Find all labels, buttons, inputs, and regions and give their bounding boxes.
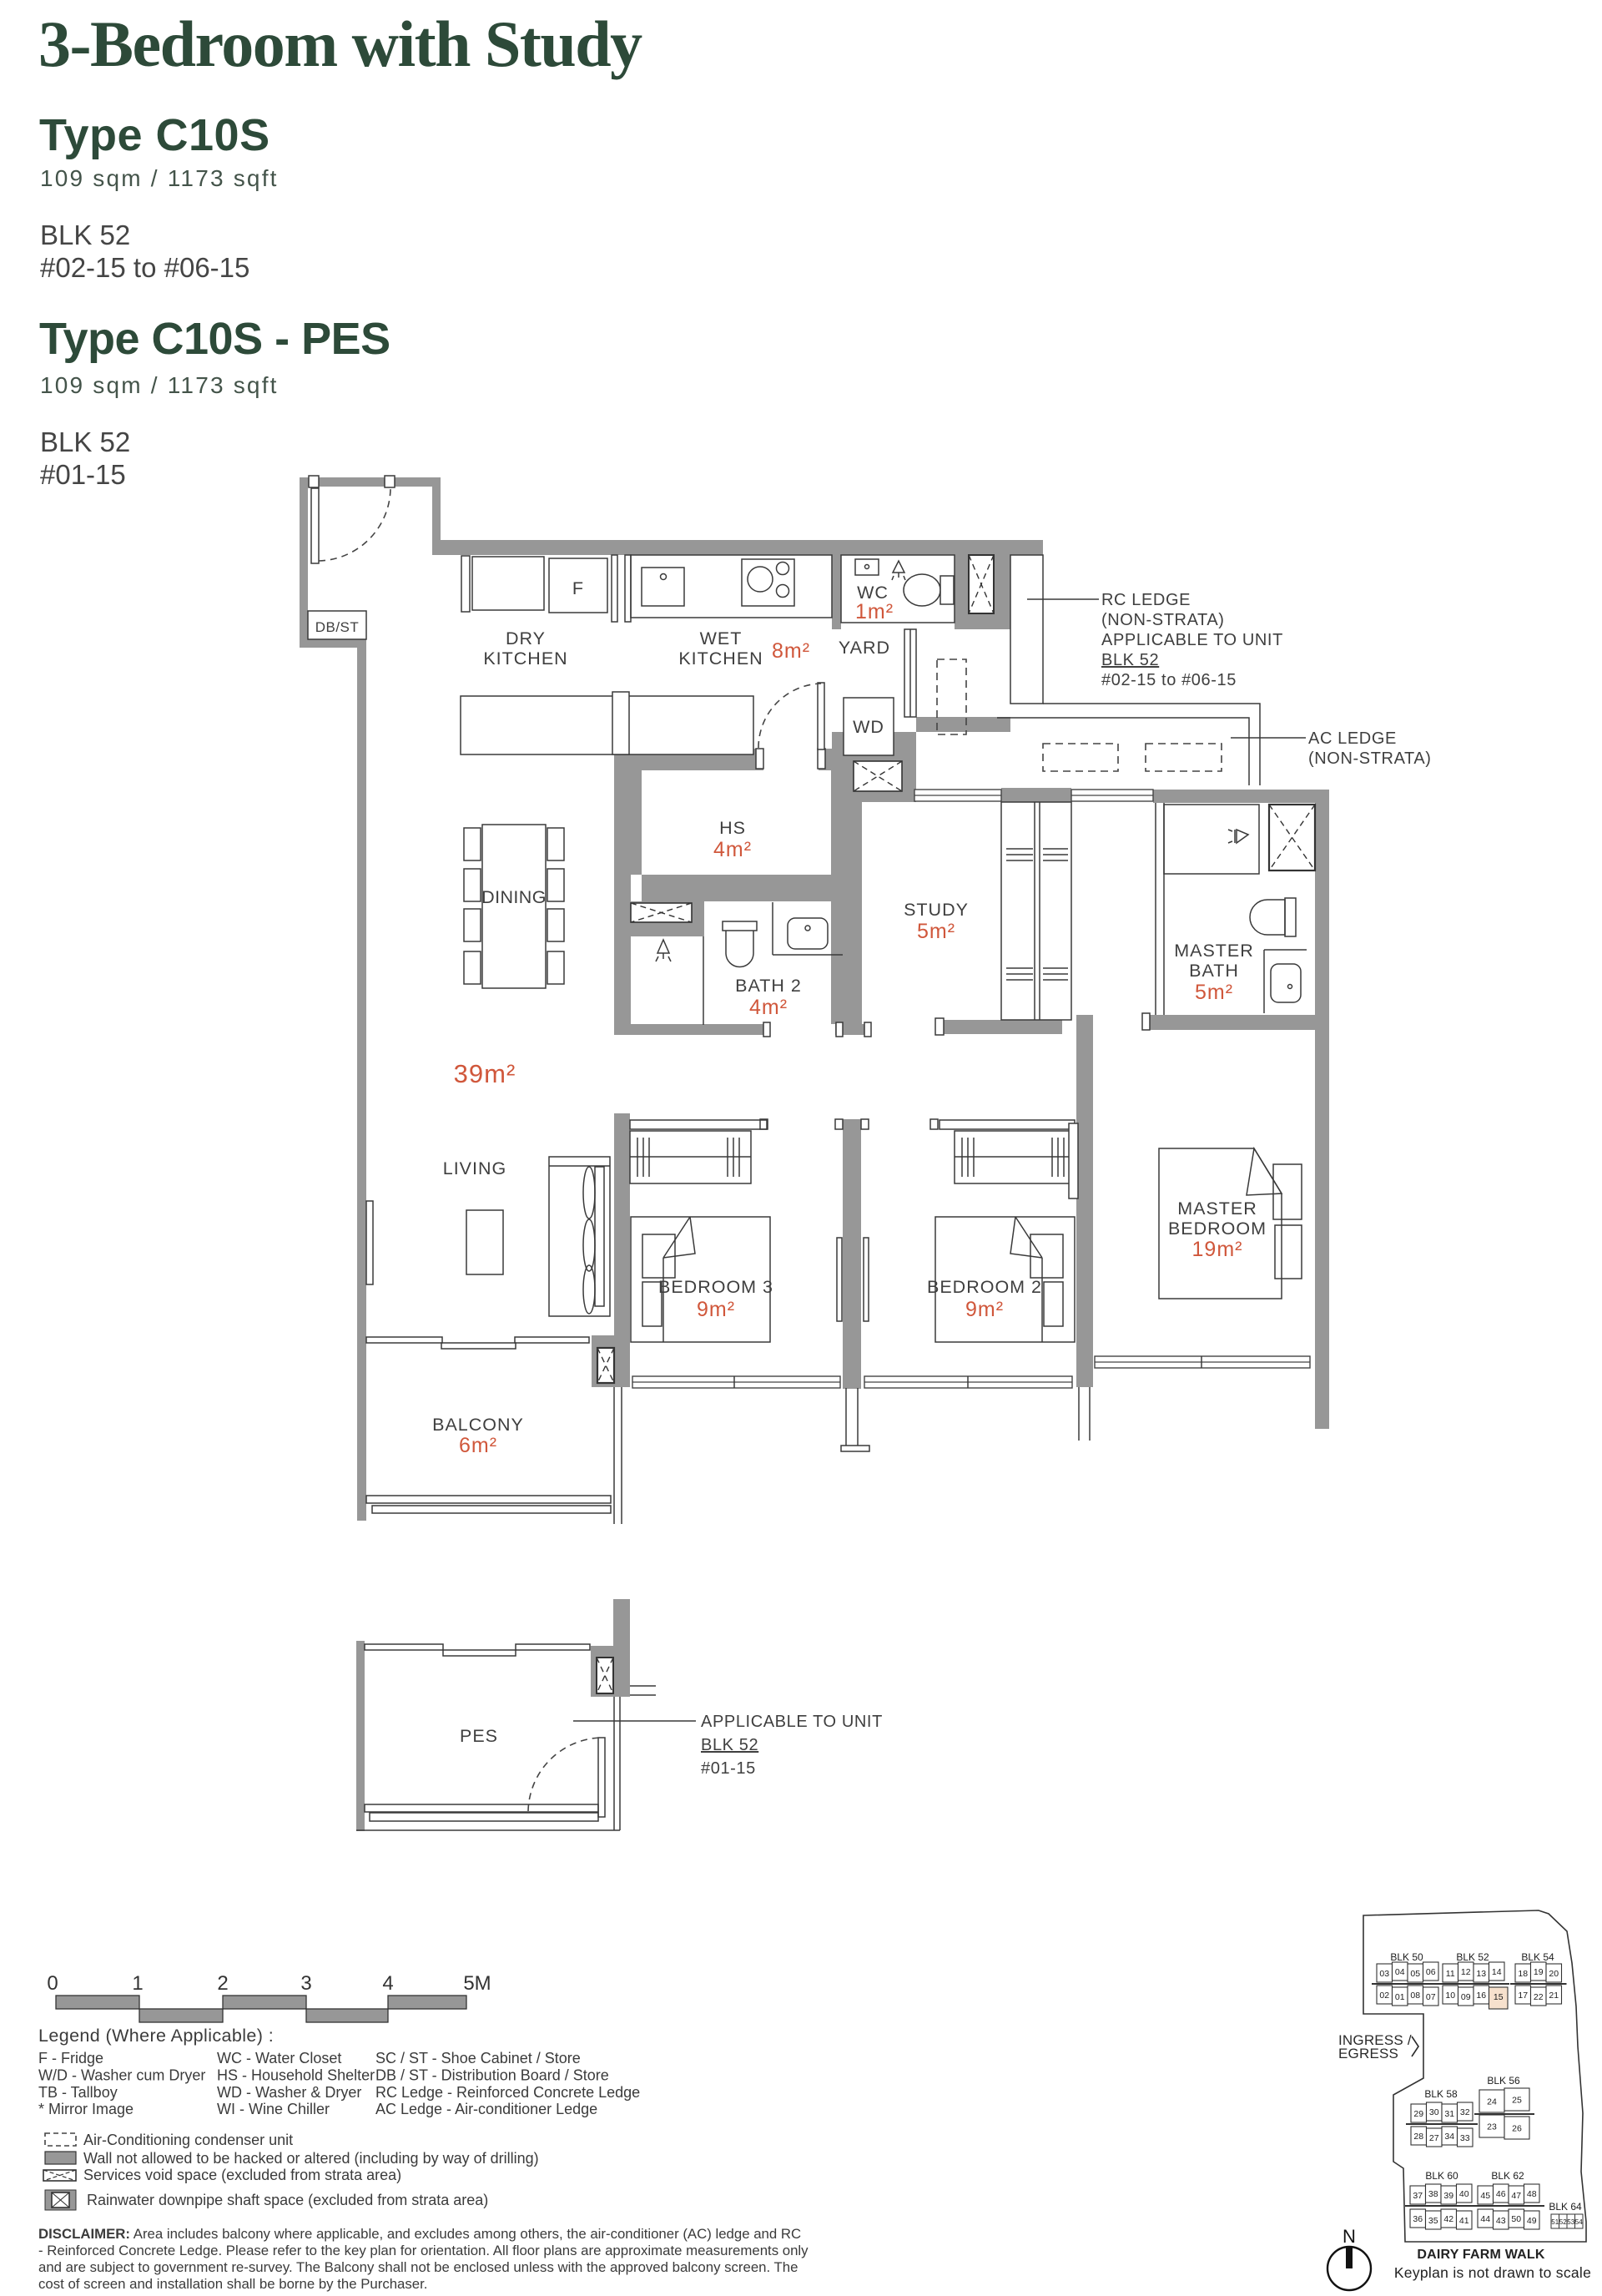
svg-text:02: 02 (1379, 1991, 1389, 2001)
svg-text:49: 49 (1527, 2216, 1537, 2226)
svg-text:05: 05 (1410, 1969, 1420, 1979)
svg-text:BLK 52: BLK 52 (701, 1736, 758, 1754)
svg-text:HS: HS (719, 818, 746, 838)
svg-text:#02-15 to #06-15: #02-15 to #06-15 (40, 252, 249, 283)
svg-text:4: 4 (382, 1972, 393, 1995)
svg-text:47: 47 (1511, 2191, 1521, 2201)
svg-text:26: 26 (1512, 2124, 1522, 2134)
svg-text:10: 10 (1445, 1991, 1455, 2001)
svg-text:BEDROOM 2: BEDROOM 2 (927, 1277, 1042, 1297)
svg-text:22: 22 (1534, 1992, 1544, 2002)
svg-text:21: 21 (1549, 1991, 1559, 2001)
svg-text:28: 28 (1413, 2132, 1423, 2142)
svg-text:DB / ST - Distribution Board /: DB / ST - Distribution Board / Store (375, 2066, 609, 2083)
svg-text:N: N (1343, 2226, 1356, 2247)
svg-text:11: 11 (1446, 1969, 1455, 1979)
svg-text:(NON-STRATA): (NON-STRATA) (1308, 749, 1432, 768)
svg-text:F: F (572, 578, 584, 598)
svg-text:DB/ST: DB/ST (315, 619, 360, 635)
svg-text:0: 0 (47, 1972, 58, 1995)
svg-text:50: 50 (1511, 2214, 1521, 2224)
svg-text:LIVING: LIVING (443, 1158, 507, 1178)
svg-text:37: 37 (1413, 2191, 1423, 2201)
svg-text:HS - Household Shelter: HS - Household Shelter (217, 2066, 375, 2083)
svg-text:54: 54 (1575, 2218, 1583, 2226)
svg-text:09: 09 (1461, 1992, 1471, 2002)
svg-text:4m²: 4m² (749, 996, 788, 1019)
svg-text:BALCONY: BALCONY (432, 1415, 524, 1435)
svg-text:29: 29 (1413, 2109, 1423, 2119)
svg-text:8m²: 8m² (772, 639, 810, 663)
svg-text:Legend (Where Applicable) :: Legend (Where Applicable) : (38, 2026, 274, 2046)
svg-text:13: 13 (1476, 1969, 1486, 1979)
svg-text:1: 1 (132, 1972, 143, 1995)
svg-text:31: 31 (1444, 2109, 1454, 2119)
svg-text:12: 12 (1461, 1967, 1471, 1977)
svg-text:9m²: 9m² (965, 1298, 1004, 1321)
svg-text:BLK 52: BLK 52 (40, 220, 130, 250)
svg-text:19m²: 19m² (1192, 1238, 1243, 1261)
svg-text:- Reinforced Concrete Ledge. P: - Reinforced Concrete Ledge. Please refe… (38, 2243, 809, 2258)
svg-text:5m²: 5m² (917, 920, 955, 943)
svg-text:53: 53 (1567, 2218, 1574, 2226)
svg-text:109 sqm / 1173 sqft: 109 sqm / 1173 sqft (40, 165, 279, 191)
svg-text:3: 3 (300, 1972, 311, 1995)
svg-text:BATH 2: BATH 2 (735, 976, 802, 996)
svg-text:Type C10S: Type C10S (39, 110, 270, 160)
svg-text:WET: WET (700, 628, 743, 648)
svg-text:WI - Wine Chiller: WI - Wine Chiller (217, 2101, 330, 2117)
svg-text:Rainwater downpipe shaft space: Rainwater downpipe shaft space (excluded… (87, 2192, 488, 2208)
svg-text:APPLICABLE TO UNIT: APPLICABLE TO UNIT (701, 1713, 883, 1731)
svg-text:30: 30 (1429, 2107, 1439, 2117)
svg-text:AC Ledge - Air-conditioner Led: AC Ledge - Air-conditioner Ledge (375, 2101, 597, 2117)
svg-text:MASTER: MASTER (1177, 1198, 1257, 1219)
svg-text:38: 38 (1428, 2189, 1438, 2199)
svg-text:5m²: 5m² (1195, 981, 1233, 1004)
svg-text:20: 20 (1549, 1969, 1559, 1979)
svg-text:BATH: BATH (1189, 961, 1239, 981)
svg-text:3-Bedroom with Study: 3-Bedroom with Study (38, 8, 642, 80)
svg-text:BLK 52: BLK 52 (1101, 651, 1159, 669)
svg-text:36: 36 (1413, 2214, 1423, 2224)
svg-text:RC LEDGE: RC LEDGE (1101, 591, 1191, 609)
svg-text:32: 32 (1460, 2107, 1470, 2117)
svg-text:39: 39 (1443, 2191, 1453, 2201)
svg-text:51: 51 (1551, 2218, 1559, 2226)
svg-text:40: 40 (1459, 2189, 1469, 2199)
svg-text:2: 2 (217, 1972, 228, 1995)
svg-text:W/D - Washer cum Dryer: W/D - Washer cum Dryer (38, 2066, 205, 2083)
svg-text:27: 27 (1429, 2133, 1439, 2143)
svg-text:BLK 52: BLK 52 (1456, 1951, 1489, 1963)
svg-text:19: 19 (1534, 1967, 1544, 1977)
svg-text:41: 41 (1459, 2216, 1469, 2226)
svg-text:Type C10S - PES: Type C10S - PES (39, 314, 390, 364)
svg-text:52: 52 (1559, 2218, 1567, 2226)
svg-text:Wall not allowed to be hacked: Wall not allowed to be hacked or altered… (83, 2150, 539, 2167)
svg-text:15: 15 (1494, 1992, 1504, 2002)
svg-text:43: 43 (1496, 2216, 1506, 2226)
svg-text:16: 16 (1476, 1991, 1486, 2001)
svg-text:5M: 5M (463, 1972, 491, 1995)
svg-text:14: 14 (1492, 1967, 1502, 1977)
svg-text:24: 24 (1487, 2097, 1497, 2107)
svg-text:PES: PES (460, 1726, 498, 1746)
svg-text:9m²: 9m² (697, 1298, 735, 1321)
svg-text:BLK 58: BLK 58 (1424, 2088, 1458, 2100)
svg-text:33: 33 (1460, 2133, 1470, 2143)
svg-text:F - Fridge: F - Fridge (38, 2050, 103, 2066)
svg-text:BLK 52: BLK 52 (40, 426, 130, 457)
svg-text:07: 07 (1426, 1992, 1436, 2002)
svg-text:45: 45 (1480, 2191, 1490, 2201)
svg-text:DISCLAIMER: Area includes balc: DISCLAIMER: Area includes balcony where … (38, 2226, 801, 2242)
svg-text:35: 35 (1428, 2216, 1438, 2226)
svg-text:17: 17 (1518, 1991, 1528, 2001)
svg-text:TB - Tallboy: TB - Tallboy (38, 2084, 118, 2101)
svg-text:DRY: DRY (506, 628, 546, 648)
svg-text:42: 42 (1443, 2214, 1453, 2224)
svg-text:SC / ST - Shoe Cabinet / Store: SC / ST - Shoe Cabinet / Store (375, 2050, 581, 2066)
svg-text:BLK 64: BLK 64 (1549, 2201, 1582, 2213)
svg-text:DINING: DINING (481, 887, 547, 907)
svg-text:23: 23 (1487, 2122, 1497, 2132)
svg-text:YARD: YARD (839, 638, 890, 658)
svg-text:6m²: 6m² (459, 1434, 497, 1457)
svg-text:BEDROOM: BEDROOM (1168, 1219, 1267, 1239)
svg-text:39m²: 39m² (454, 1059, 516, 1088)
svg-text:* Mirror Image: * Mirror Image (38, 2101, 133, 2117)
svg-text:34: 34 (1444, 2132, 1454, 2142)
svg-text:KITCHEN: KITCHEN (678, 648, 763, 669)
svg-text:MASTER: MASTER (1174, 941, 1254, 961)
svg-text:EGRESS: EGRESS (1338, 2046, 1398, 2061)
svg-text:01: 01 (1395, 1992, 1405, 2002)
svg-text:18: 18 (1518, 1969, 1528, 1979)
svg-text:46: 46 (1496, 2189, 1506, 2199)
svg-text:BLK 54: BLK 54 (1521, 1951, 1554, 1963)
svg-text:109 sqm / 1173 sqft: 109 sqm / 1173 sqft (40, 372, 279, 398)
svg-text:48: 48 (1527, 2189, 1537, 2199)
svg-text:Air-Conditioning condenser uni: Air-Conditioning condenser unit (83, 2132, 293, 2148)
svg-text:WD: WD (853, 717, 884, 737)
svg-text:03: 03 (1379, 1969, 1389, 1979)
svg-text:4m²: 4m² (713, 838, 752, 861)
svg-text:BLK 60: BLK 60 (1425, 2170, 1458, 2182)
svg-text:25: 25 (1512, 2096, 1522, 2106)
svg-text:08: 08 (1410, 1991, 1420, 2001)
svg-text:BLK 62: BLK 62 (1491, 2170, 1524, 2182)
svg-text:(NON-STRATA): (NON-STRATA) (1101, 611, 1225, 629)
svg-text:06: 06 (1426, 1967, 1436, 1977)
svg-text:04: 04 (1395, 1967, 1405, 1977)
svg-text:BEDROOM 3: BEDROOM 3 (658, 1277, 773, 1297)
svg-text:and are subject to government: and are subject to government re-survey.… (38, 2259, 798, 2275)
svg-text:Services void space (excluded: Services void space (excluded from strat… (83, 2167, 401, 2183)
svg-text:BLK 56: BLK 56 (1487, 2075, 1520, 2087)
svg-text:WC - Water Closet: WC - Water Closet (217, 2050, 341, 2066)
svg-text:KITCHEN: KITCHEN (483, 648, 567, 669)
svg-text:DAIRY FARM WALK: DAIRY FARM WALK (1417, 2248, 1544, 2262)
svg-text:APPLICABLE TO UNIT: APPLICABLE TO UNIT (1101, 631, 1283, 649)
svg-text:cost of screen and installatio: cost of screen and installation shall be… (38, 2276, 427, 2292)
svg-text:#01-15: #01-15 (40, 459, 126, 490)
svg-text:Keyplan is not drawn to scale: Keyplan is not drawn to scale (1394, 2264, 1591, 2281)
svg-text:STUDY: STUDY (904, 900, 969, 920)
svg-text:#02-15 to #06-15: #02-15 to #06-15 (1101, 671, 1237, 689)
svg-text:WD - Washer & Dryer: WD - Washer & Dryer (217, 2084, 361, 2101)
svg-text:#01-15: #01-15 (701, 1759, 756, 1778)
svg-text:44: 44 (1480, 2214, 1490, 2224)
svg-text:BLK 50: BLK 50 (1390, 1951, 1423, 1963)
svg-text:1m²: 1m² (855, 600, 894, 623)
svg-text:AC LEDGE: AC LEDGE (1308, 729, 1397, 748)
svg-text:RC Ledge - Reinforced Concrete: RC Ledge - Reinforced Concrete Ledge (375, 2084, 640, 2101)
